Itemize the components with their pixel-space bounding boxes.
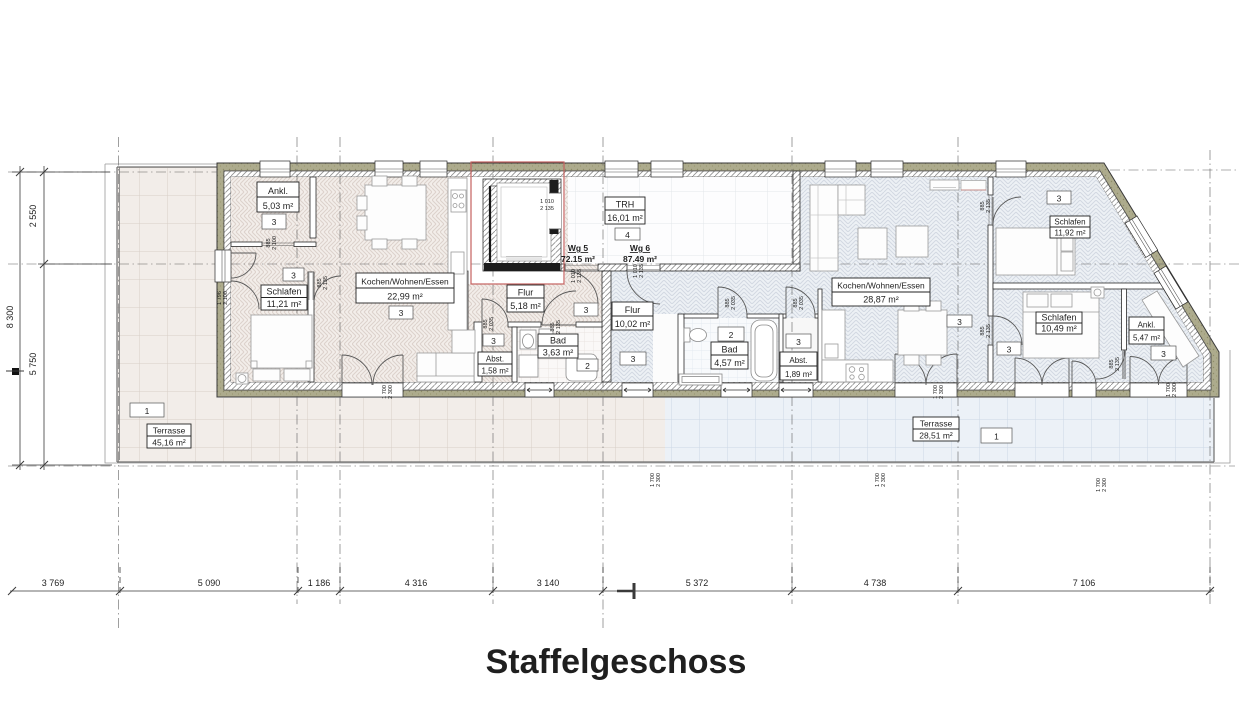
svg-text:Flur: Flur [518,288,534,298]
svg-text:2: 2 [585,361,590,371]
svg-text:3: 3 [1161,349,1166,359]
svg-text:7 106: 7 106 [1073,578,1096,588]
svg-text:87.49 m²: 87.49 m² [623,254,657,264]
svg-text:2 100: 2 100 [223,291,229,305]
svg-text:2 135: 2 135 [577,269,583,283]
svg-text:2 135: 2 135 [986,324,992,338]
svg-text:2 035: 2 035 [489,317,495,331]
svg-text:10,02 m²: 10,02 m² [615,319,651,329]
svg-text:3: 3 [272,217,277,227]
svg-text:2 135: 2 135 [639,264,645,278]
svg-text:1 186: 1 186 [308,578,331,588]
svg-text:3: 3 [584,305,589,315]
svg-text:3,63 m²: 3,63 m² [543,348,574,358]
svg-text:Terrasse: Terrasse [153,426,186,436]
svg-text:3 769: 3 769 [42,578,65,588]
svg-text:Abst.: Abst. [486,355,504,364]
svg-text:28,87 m²: 28,87 m² [863,295,899,305]
svg-text:Flur: Flur [625,305,641,315]
svg-text:4 738: 4 738 [864,578,887,588]
svg-text:3: 3 [491,336,496,346]
svg-text:5 750: 5 750 [28,353,38,376]
svg-text:2 550: 2 550 [28,205,38,228]
svg-text:2 135: 2 135 [986,199,992,213]
svg-text:Terrasse: Terrasse [920,419,953,429]
svg-text:11,92 m²: 11,92 m² [1055,229,1086,238]
svg-text:3: 3 [291,271,296,281]
svg-text:72.15 m²: 72.15 m² [561,254,595,264]
svg-text:Abst.: Abst. [789,356,807,365]
svg-text:Schlafen: Schlafen [1041,313,1076,323]
svg-text:Ankl.: Ankl. [268,186,288,196]
svg-text:22,99 m²: 22,99 m² [387,292,423,302]
svg-text:28,51 m²: 28,51 m² [919,431,953,441]
svg-text:5 090: 5 090 [198,578,221,588]
svg-text:3 140: 3 140 [537,578,560,588]
svg-text:16,01 m²: 16,01 m² [607,213,643,223]
svg-text:5,18 m²: 5,18 m² [510,301,541,311]
svg-text:4 316: 4 316 [405,578,428,588]
svg-text:2 135: 2 135 [556,320,562,334]
svg-text:10,49 m²: 10,49 m² [1041,324,1077,334]
svg-text:Wg 6: Wg 6 [630,243,651,253]
svg-text:2 300: 2 300 [1102,478,1108,492]
svg-text:3: 3 [1057,194,1062,204]
svg-text:2 300: 2 300 [939,385,945,399]
svg-text:2 300: 2 300 [388,385,394,399]
svg-text:Schlafen: Schlafen [1054,218,1085,227]
svg-text:2: 2 [729,330,734,340]
svg-text:Kochen/Wohnen/Essen: Kochen/Wohnen/Essen [837,281,925,291]
svg-text:Bad: Bad [550,336,566,346]
svg-text:1 010: 1 010 [540,199,554,205]
svg-text:Ankl.: Ankl. [1138,321,1156,330]
svg-text:4,57 m²: 4,57 m² [714,358,745,368]
svg-text:3: 3 [631,354,636,364]
svg-text:2 035: 2 035 [731,296,737,310]
svg-text:2 135: 2 135 [1115,357,1121,371]
svg-text:1,58 m²: 1,58 m² [481,367,508,376]
svg-text:Schlafen: Schlafen [266,287,301,297]
svg-text:2 300: 2 300 [656,473,662,487]
svg-text:TRH: TRH [616,200,635,210]
svg-text:2 135: 2 135 [323,276,329,290]
svg-text:1: 1 [994,432,999,442]
svg-text:1,89 m²: 1,89 m² [785,370,812,379]
svg-text:Bad: Bad [721,345,737,355]
svg-text:3: 3 [1007,345,1012,355]
svg-text:Wg 5: Wg 5 [568,243,589,253]
svg-text:Staffelgeschoss: Staffelgeschoss [486,643,747,681]
svg-text:5,03 m²: 5,03 m² [263,201,294,211]
svg-text:4: 4 [625,230,630,240]
svg-text:5 372: 5 372 [686,578,709,588]
svg-text:1: 1 [145,406,150,416]
svg-text:8 300: 8 300 [5,306,15,329]
svg-text:3: 3 [399,308,404,318]
svg-text:11,21 m²: 11,21 m² [267,299,302,309]
svg-text:5,47 m²: 5,47 m² [1133,334,1160,343]
svg-text:2 035: 2 035 [799,296,805,310]
svg-text:3: 3 [796,337,801,347]
svg-text:45,16 m²: 45,16 m² [152,438,186,448]
svg-text:2 300: 2 300 [881,473,887,487]
svg-text:2 135: 2 135 [540,206,554,212]
svg-text:2 100: 2 100 [272,236,278,250]
svg-text:2 300: 2 300 [1172,383,1178,397]
svg-text:Kochen/Wohnen/Essen: Kochen/Wohnen/Essen [361,277,449,287]
svg-text:3: 3 [957,317,962,327]
